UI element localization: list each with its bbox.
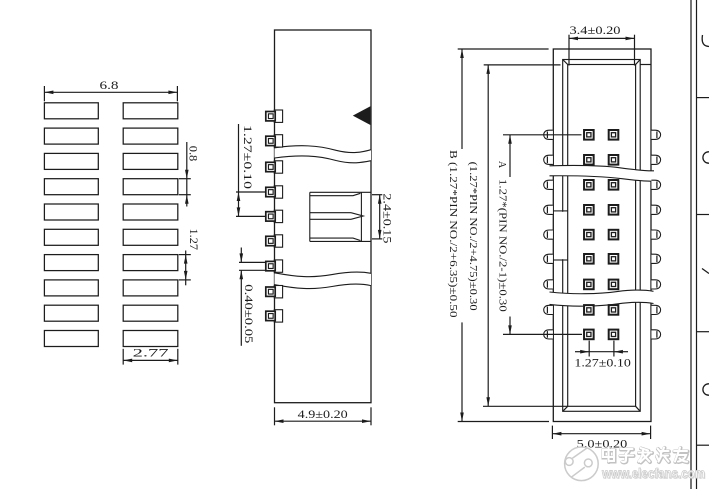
svg-text:6.8: 6.8 — [100, 80, 120, 92]
svg-text:www.elecfans.com: www.elecfans.com — [601, 466, 705, 481]
svg-text:1.27±0.10: 1.27±0.10 — [574, 356, 631, 370]
svg-text:0.8: 0.8 — [186, 146, 198, 162]
svg-text:1.27*(PIN NO./2-1)±0.30: 1.27*(PIN NO./2-1)±0.30 — [497, 179, 508, 312]
svg-text:B (1.27*PIN NO./2+6.35)±0.50: B (1.27*PIN NO./2+6.35)±0.50 — [447, 150, 458, 318]
svg-text:3.4±0.20: 3.4±0.20 — [570, 23, 621, 37]
svg-text:A: A — [496, 161, 507, 169]
svg-text:2.4±0.15: 2.4±0.15 — [380, 193, 394, 243]
svg-text:0.40±0.05: 0.40±0.05 — [242, 284, 256, 343]
svg-text:4.9±0.20: 4.9±0.20 — [298, 407, 348, 421]
svg-text:1.27±0.10: 1.27±0.10 — [241, 125, 255, 189]
svg-text:(1.27*PIN NO./2+4.75)±0.30: (1.27*PIN NO./2+4.75)±0.30 — [467, 162, 478, 311]
svg-text:2.77: 2.77 — [133, 348, 170, 360]
svg-text:1.27: 1.27 — [187, 229, 199, 251]
